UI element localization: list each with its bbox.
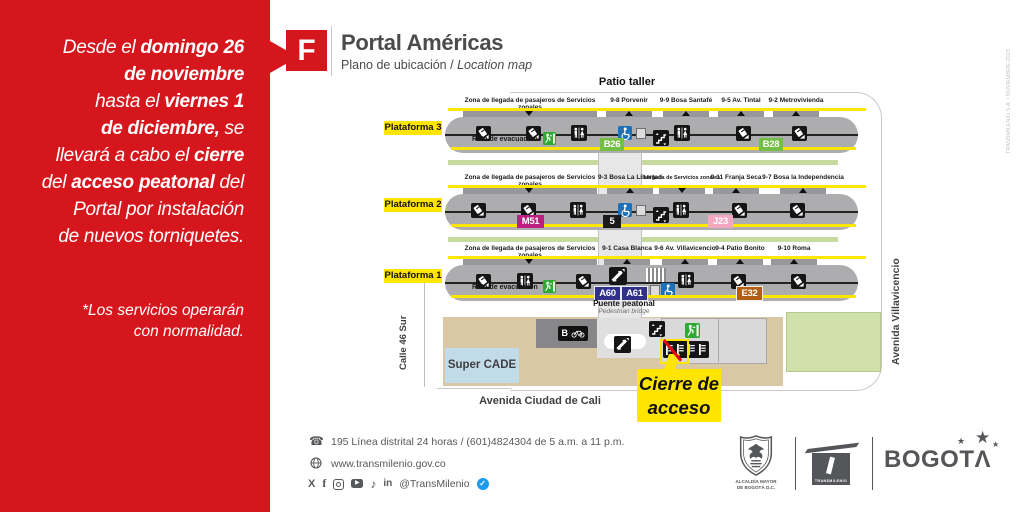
platform-edge-line	[448, 256, 866, 259]
platform-1-badge: Plataforma 1	[384, 269, 442, 283]
bogota-star-icon: ★	[992, 440, 999, 449]
platform-3-badge: Plataforma 3	[384, 121, 442, 135]
platform-edge-line	[451, 295, 856, 298]
route-badge-5: 5	[603, 215, 621, 228]
card-validator-icon	[790, 203, 805, 218]
station-arrow-icon	[625, 111, 633, 116]
stairs-icon	[649, 321, 665, 337]
notice-line: Desde el domingo 26	[0, 34, 244, 61]
building-divider	[718, 318, 719, 362]
patio-taller-label: Patio taller	[577, 76, 677, 88]
station-arrow-icon	[792, 111, 800, 116]
notice-line: del acceso peatonal del	[0, 169, 244, 196]
page-title: Portal Américas	[341, 30, 503, 56]
station-arrow-icon	[737, 111, 745, 116]
green-strip	[448, 160, 838, 165]
restroom-icon	[571, 125, 587, 141]
card-validator-icon	[791, 274, 806, 289]
card-validator-icon	[471, 203, 486, 218]
elevator-icon	[636, 205, 646, 216]
station-arrow-icon	[682, 111, 690, 116]
tiktok-icon: ♪	[370, 477, 376, 491]
arrival-arrow-icon	[678, 188, 686, 193]
platform-2-badge: Plataforma 2	[384, 198, 442, 212]
evacuation-exit-icon	[543, 132, 556, 145]
bogota-logo: BOGOTΛ	[884, 446, 991, 474]
card-validator-icon	[792, 126, 807, 141]
station-arrow-icon	[799, 188, 807, 193]
bike-parking-icon: B	[558, 326, 588, 341]
emergency-exit-icon	[685, 323, 700, 338]
logo-divider	[795, 437, 796, 490]
pedestrian-bridge-label: Puente peatonal Pedestrian bridge	[579, 299, 669, 315]
station-arrow-icon	[732, 188, 740, 193]
route-badge-b26: B26	[600, 138, 624, 151]
station-arrow-icon	[790, 259, 798, 264]
globe-icon	[310, 457, 322, 469]
logo-divider	[872, 437, 873, 490]
flyer-root: Desde el domingo 26 de noviembre hasta e…	[0, 0, 1024, 512]
transmilenio-swoosh-icon	[805, 443, 859, 454]
stairs-icon	[653, 130, 669, 146]
station-arrow-icon	[623, 259, 631, 264]
notice-line: de diciembre, se	[0, 115, 244, 142]
notice-text: Desde el domingo 26 de noviembre hasta e…	[0, 34, 244, 250]
station-arrow-icon	[681, 259, 689, 264]
station-label: 9-7 Bosa la Independencia	[743, 174, 863, 181]
header-divider	[331, 26, 332, 76]
phone-line: 195 Línea distrital 24 horas / (601)4824…	[331, 436, 624, 448]
notice-line: de noviembre	[0, 61, 244, 88]
elevator-icon	[636, 128, 646, 139]
facebook-icon: f	[322, 476, 326, 491]
route-badge-b28: B28	[759, 138, 783, 151]
x-icon: X	[308, 478, 315, 490]
notice-line: Portal por instalación	[0, 196, 244, 223]
super-cade-building: Super CADE	[445, 348, 519, 383]
stairs-icon	[653, 207, 669, 223]
platform-edge-line	[448, 108, 866, 111]
platform-edge-line	[451, 224, 856, 227]
station-arrow-icon	[626, 188, 634, 193]
notice-line: de nuevos torniquetes.	[0, 223, 244, 250]
transmilenio-slash-icon	[826, 457, 835, 475]
card-validator-icon	[736, 126, 751, 141]
green-strip	[448, 237, 838, 242]
social-row: X f ▶ ♪ in @TransMilenio ✓	[308, 476, 489, 491]
linkedin-icon: in	[383, 478, 392, 489]
route-badge-j23: J23	[708, 215, 733, 228]
map-boundary-bottom	[437, 388, 512, 390]
calle-46-line	[424, 283, 425, 387]
arrival-arrow-icon	[525, 111, 533, 116]
restroom-icon	[678, 272, 694, 288]
verified-badge-icon: ✓	[477, 478, 489, 490]
page-subtitle: Plano de ubicación / Location map	[341, 58, 532, 72]
bogota-star-icon: ★	[975, 428, 990, 448]
restroom-icon	[570, 202, 586, 218]
line-f-badge: F	[286, 30, 327, 71]
route-badge-e32: E32	[736, 286, 763, 301]
card-validator-icon	[732, 203, 747, 218]
card-validator-icon	[576, 274, 591, 289]
evacuation-exit-icon	[543, 280, 556, 293]
transmilenio-logo: TRANSMILENIO	[812, 453, 850, 485]
restroom-icon	[674, 125, 690, 141]
street-label-calle46: Calle 46 Sur	[398, 300, 409, 370]
bogota-star-icon: ★	[957, 436, 965, 447]
station-label: 9-10 Roma	[734, 245, 854, 252]
station-label: 9-2 Metrovivienda	[736, 97, 856, 104]
arrival-arrow-icon	[525, 259, 533, 264]
arrival-arrow-icon	[525, 188, 533, 193]
restroom-icon	[673, 202, 689, 218]
alcaldia-crest-icon	[736, 434, 776, 478]
evacuation-route-label: Ruta de evacuación	[472, 136, 538, 143]
notice-line: hasta el viernes 1	[0, 88, 244, 115]
escalator-icon	[614, 336, 631, 353]
green-area	[786, 312, 881, 372]
edition-note: TRANSMILENIO S.A. / NOVIEMBRE-2023	[1006, 14, 1012, 154]
platform-edge-line	[451, 147, 856, 150]
notice-footnote: *Los servicios operarán con normalidad.	[0, 300, 244, 342]
instagram-icon	[333, 479, 344, 490]
station-arrow-icon	[736, 259, 744, 264]
street-label-villavicencio: Avenida Villavicencio	[890, 255, 902, 365]
youtube-icon: ▶	[351, 479, 363, 488]
closure-callout: Cierre de acceso	[637, 369, 721, 422]
website-text: www.transmilenio.gov.co	[331, 458, 446, 470]
crosswalk-stripes	[646, 268, 666, 282]
escalator-icon	[609, 267, 627, 285]
street-label-ciudad-de-cali: Avenida Ciudad de Cali	[455, 395, 625, 407]
phone-icon: ☎	[309, 434, 324, 448]
route-badge-m51: M51	[517, 215, 544, 228]
notice-line: llevará a cabo el cierre	[0, 142, 244, 169]
social-handle: @TransMilenio	[399, 478, 469, 490]
evacuation-route-label: Ruta de evacuación	[472, 284, 538, 291]
alcaldia-logo-text: ALCALDÍA MAYOR DE BOGOTÁ D.C.	[726, 479, 786, 491]
